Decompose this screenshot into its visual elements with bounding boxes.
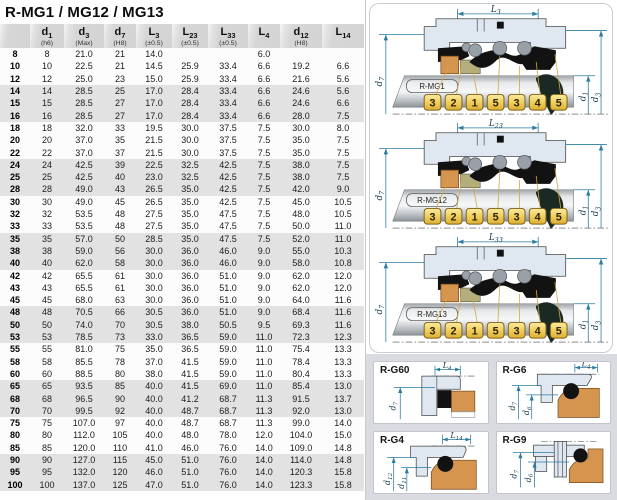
row-size-label: 75 [0, 417, 30, 429]
dimension-cell: 53 [30, 331, 64, 343]
svg-text:1: 1 [472, 326, 478, 338]
dimension-cell: 40.0 [136, 417, 172, 429]
dimension-cell: 10.3 [322, 245, 364, 257]
table-row: 9090127.011545.051.076.014.0114.014.8 [0, 454, 364, 466]
seat-diagram-rg60: R-G60 L4 d7 [373, 361, 489, 424]
dimension-cell: 27 [104, 97, 136, 109]
row-size-label: 38 [0, 245, 30, 257]
dimension-cell: 21.5 [136, 147, 172, 159]
dimension-cell: 7.5 [322, 159, 364, 171]
dimension-cell: 15 [30, 97, 64, 109]
dimension-cell: 58 [104, 257, 136, 269]
column-header: L14 [322, 24, 364, 48]
row-size-label: 68 [0, 393, 30, 405]
dimension-cell: 37.5 [208, 134, 248, 146]
table-row: 505074.07030.538.050.59.569.311.6 [0, 319, 364, 331]
dimension-cell: 14.5 [136, 60, 172, 72]
part-badge: 5 [487, 94, 504, 110]
dimension-cell: 7.5 [248, 147, 280, 159]
dimension-cell: 33.4 [208, 73, 248, 85]
dimension-cell: 45 [104, 196, 136, 208]
dimension-cell: 14.0 [248, 454, 280, 466]
dimension-cell: 28.5 [64, 110, 104, 122]
dimension-cell: 27 [104, 110, 136, 122]
dimension-cell: 40 [30, 257, 64, 269]
dimension-cell: 25.9 [172, 60, 208, 72]
dimension-cell: 41.0 [136, 442, 172, 454]
dimension-cell: 65 [30, 380, 64, 392]
dimension-cell: 33.4 [208, 60, 248, 72]
dimension-cell: 30.5 [136, 306, 172, 318]
dimension-cell: 41.5 [172, 380, 208, 392]
dimension-cell: 46.0 [172, 442, 208, 454]
set-screw [497, 22, 504, 29]
dimension-cell: 9.0 [248, 270, 280, 282]
dimension-cell: 51.0 [208, 294, 248, 306]
diagram-label: R-MG13 [417, 310, 447, 319]
dimension-cell: 127.0 [64, 454, 104, 466]
dimension-cell: 43 [104, 183, 136, 195]
table-row: 121225.02315.025.933.46.621.65.6 [0, 73, 364, 85]
dimension-cell: 42.5 [208, 159, 248, 171]
seal-cross-section-drawing: L33 R-MG13 [371, 233, 611, 347]
row-size-label: 53 [0, 331, 30, 343]
table-row: 8080112.010540.048.078.012.0104.015.0 [0, 429, 364, 441]
dimension-cell: 39 [104, 159, 136, 171]
dimension-cell: 6.0 [248, 48, 280, 60]
dimension-cell: 24.6 [280, 85, 322, 97]
table-row: 656593.58540.041.569.011.085.413.0 [0, 380, 364, 392]
dimension-cell: 21.5 [136, 134, 172, 146]
dim-label-d7: d7 [509, 469, 520, 478]
dimension-cell: 12.0 [322, 282, 364, 294]
dimension-cell: 42 [30, 270, 64, 282]
dimension-cell: 137.0 [64, 479, 104, 491]
part-badge: 3 [424, 322, 441, 338]
dimension-cell: 75.4 [280, 343, 322, 355]
column-header: d7(H8) [104, 24, 136, 48]
row-size-label: 40 [0, 257, 30, 269]
dim-label-d7: d7 [507, 401, 518, 410]
column-header: L23(±0.5) [172, 24, 208, 48]
dimension-cell: 15.8 [322, 466, 364, 478]
dimension-cell: 36.0 [172, 257, 208, 269]
dimension-cell: 28.5 [64, 97, 104, 109]
dimension-cell: 58.0 [280, 257, 322, 269]
dimension-cell: 23 [104, 73, 136, 85]
dimension-cell: 22.5 [64, 60, 104, 72]
table-row: 454568.06330.036.051.09.064.011.6 [0, 294, 364, 306]
dimension-cell: 59.0 [208, 368, 248, 380]
dimension-cell: 25 [104, 85, 136, 97]
dimension-cell: 45 [30, 294, 64, 306]
dimension-cell: 123.3 [280, 479, 322, 491]
row-size-label: 35 [0, 233, 30, 245]
column-header: L3(±0.5) [136, 24, 172, 48]
dimension-cell: 25.0 [64, 73, 104, 85]
part-badge: 5 [487, 322, 504, 338]
table-row: 8585120.011041.046.076.014.0109.014.8 [0, 442, 364, 454]
dimension-cell: 30.0 [136, 294, 172, 306]
dimension-cell: 93.5 [64, 380, 104, 392]
mg-seal-diagram: L33 R-MG13 [370, 233, 612, 347]
row-size-label: 90 [0, 454, 30, 466]
dimension-cell: 9.0 [248, 245, 280, 257]
dimension-cell: 59.0 [64, 245, 104, 257]
table-row: 100100137.012547.051.076.014.0123.315.8 [0, 479, 364, 491]
dimension-cell: 24.6 [280, 97, 322, 109]
svg-text:4: 4 [535, 98, 541, 110]
dim-label-d1: d1 [578, 320, 589, 330]
dimension-cell: 65.5 [64, 282, 104, 294]
svg-text:5: 5 [493, 98, 499, 110]
dimension-cell: 14.0 [248, 479, 280, 491]
part-badge: 5 [550, 208, 567, 224]
dimension-cell: 35.0 [280, 134, 322, 146]
row-size-label: 60 [0, 368, 30, 380]
dimension-cell: 69.3 [280, 319, 322, 331]
dimension-cell: 92.0 [280, 405, 322, 417]
dimension-cell: 5.6 [322, 85, 364, 97]
dimension-cell: 33.0 [136, 331, 172, 343]
row-size-label: 18 [0, 122, 30, 134]
dimension-cell: 13.3 [322, 356, 364, 368]
dimension-cell: 40.0 [136, 380, 172, 392]
dimension-cell: 28.4 [172, 85, 208, 97]
dimension-cell: 28.4 [172, 97, 208, 109]
row-size-label: 42 [0, 270, 30, 282]
dimension-cell: 78 [104, 356, 136, 368]
mg-diagrams-card: L3 R-MG1 [369, 3, 613, 353]
dimension-cell: 35 [104, 134, 136, 146]
row-size-label: 65 [0, 380, 30, 392]
dimension-cell: 68.7 [208, 417, 248, 429]
dim-label-d7: d7 [375, 76, 386, 87]
row-size-label: 20 [0, 134, 30, 146]
dimension-cell: 32.5 [172, 159, 208, 171]
dimension-cell: 48 [30, 306, 64, 318]
dimension-cell: 53.5 [64, 220, 104, 232]
dimension-cell: 36.5 [172, 331, 208, 343]
row-size-label: 8 [0, 48, 30, 60]
dimension-cell: 7.5 [322, 147, 364, 159]
table-row: 252542.54023.032.542.57.538.07.5 [0, 171, 364, 183]
dimension-cell: 48.0 [172, 429, 208, 441]
dimension-cell: 14.0 [136, 48, 172, 60]
dimension-cell: 33.4 [208, 110, 248, 122]
dimension-cell: 12.0 [248, 429, 280, 441]
dimension-cell: 38.0 [280, 159, 322, 171]
svg-text:5: 5 [493, 326, 499, 338]
dimension-cell: 6.6 [248, 110, 280, 122]
dimension-cell: 41.5 [172, 368, 208, 380]
elastomer-bellows [469, 160, 555, 184]
dimension-cell: 22 [30, 147, 64, 159]
dimension-cell: 125 [104, 479, 136, 491]
dimension-cell: 36.0 [172, 270, 208, 282]
dimension-cell: 59.0 [208, 356, 248, 368]
dimension-cell: 62.0 [280, 270, 322, 282]
dim-label-d3: d3 [591, 207, 602, 217]
dimension-cell: 14.0 [248, 466, 280, 478]
dimension-cell: 46.0 [136, 466, 172, 478]
dimension-cell: 11.3 [248, 405, 280, 417]
dimension-cell: 120.0 [64, 442, 104, 454]
dimension-cell: 73 [104, 331, 136, 343]
column-header: d3(Max) [64, 24, 104, 48]
table-row: 303049.04526.535.042.57.545.010.5 [0, 196, 364, 208]
dimension-cell: 7.5 [322, 110, 364, 122]
table-row: 333353.54827.535.047.57.550.011.0 [0, 220, 364, 232]
diagram-label: R-G9 [503, 435, 527, 446]
dim-label-d3: d3 [591, 321, 602, 331]
dimension-cell: 58 [30, 356, 64, 368]
svg-text:5: 5 [556, 212, 562, 224]
table-row: 202037.03521.530.037.57.535.07.5 [0, 134, 364, 146]
row-size-label: 70 [0, 405, 30, 417]
dimension-cell: 72.3 [280, 331, 322, 343]
dimension-cell: 36.0 [172, 294, 208, 306]
dimension-cell: 35 [30, 233, 64, 245]
dimension-cell: 35.0 [172, 233, 208, 245]
dimension-cell: 132.0 [64, 466, 104, 478]
dimension-cell: 7.5 [248, 233, 280, 245]
dimension-cell: 47.5 [208, 208, 248, 220]
dimension-cell: 95 [30, 466, 64, 478]
dimension-cell: 30.0 [172, 147, 208, 159]
dimension-cell: 59.0 [208, 331, 248, 343]
dimension-cell: 85.4 [280, 380, 322, 392]
part-badge: 4 [529, 322, 546, 338]
dimension-cell: 25.9 [172, 73, 208, 85]
table-row: 7575107.09740.048.768.711.399.014.0 [0, 417, 364, 429]
dimension-cell: 120 [104, 466, 136, 478]
table-row: 707099.59240.048.768.711.392.013.0 [0, 405, 364, 417]
row-size-label: 28 [0, 183, 30, 195]
diagram-label: R-G6 [503, 365, 527, 376]
dim-label-length: L3 [490, 5, 501, 16]
dimension-cell: 23.0 [136, 171, 172, 183]
dim-label-length: L33 [488, 233, 503, 244]
dimension-cell: 80.4 [280, 368, 322, 380]
dimension-cell: 52.0 [280, 233, 322, 245]
dimension-cell: 48 [104, 220, 136, 232]
dimension-cell: 11.6 [322, 319, 364, 331]
dimension-cell: 76.0 [208, 479, 248, 491]
dimension-cell: 30.0 [172, 122, 208, 134]
dimension-cell: 9.0 [322, 183, 364, 195]
dimension-cell: 12.0 [322, 270, 364, 282]
row-size-label: 24 [0, 159, 30, 171]
row-size-label: 33 [0, 220, 30, 232]
part-badge: 3 [508, 94, 525, 110]
dim-label-l4: L4 [580, 362, 590, 371]
dimension-cell: 48.7 [172, 405, 208, 417]
dimension-cell: 30.0 [172, 134, 208, 146]
dimension-cell: 75 [30, 417, 64, 429]
dim-label-d7: d7 [375, 190, 386, 201]
dimension-cell: 110 [104, 442, 136, 454]
table-row: 353557.05028.535.047.57.552.011.0 [0, 233, 364, 245]
table-row: 404062.05830.036.046.09.058.010.8 [0, 257, 364, 269]
part-badge: 2 [445, 208, 462, 224]
dimension-cell: 36.5 [172, 343, 208, 355]
dimension-cell: 42.5 [64, 171, 104, 183]
dimension-cell: 75 [104, 343, 136, 355]
dimension-cell: 26.5 [136, 196, 172, 208]
dimension-cell: 63 [104, 294, 136, 306]
table-row: 151528.52717.028.433.46.624.66.6 [0, 97, 364, 109]
dimension-cell: 43 [30, 282, 64, 294]
dimension-cell: 68.0 [64, 294, 104, 306]
table-row: 434365.56130.036.051.09.062.012.0 [0, 282, 364, 294]
svg-text:1: 1 [472, 98, 478, 110]
part-badge: 2 [445, 94, 462, 110]
dimension-cell: 78.4 [280, 356, 322, 368]
dimension-cell: 92 [104, 405, 136, 417]
dimension-cell [172, 48, 208, 60]
table-header-row: d1(h6)d3(Max)d7(H8)L3(±0.5)L23(±0.5)L33(… [0, 24, 364, 48]
seal-face-primary [441, 284, 459, 302]
dimension-cell [208, 48, 248, 60]
svg-text:4: 4 [535, 326, 541, 338]
dimension-cell: 109.0 [280, 442, 322, 454]
dimension-cell: 76.0 [208, 466, 248, 478]
row-size-label: 80 [0, 429, 30, 441]
dimension-cell: 10.8 [322, 257, 364, 269]
dimension-cell: 9.0 [248, 294, 280, 306]
dimension-cell: 47.5 [208, 233, 248, 245]
part-badge: 1 [466, 322, 483, 338]
dimension-cell: 81.0 [64, 343, 104, 355]
dimension-cell: 13.0 [322, 405, 364, 417]
dimension-cell: 47.0 [136, 479, 172, 491]
dimension-cell: 24 [30, 159, 64, 171]
dimension-cell: 97 [104, 417, 136, 429]
dimension-cell: 61 [104, 270, 136, 282]
dimension-cell: 38.0 [280, 171, 322, 183]
dimension-cell: 27.5 [136, 220, 172, 232]
column-header: d1(h6) [30, 24, 64, 48]
dim-label-l4: L4 [442, 362, 452, 372]
dimension-cell: 32.0 [64, 122, 104, 134]
dimension-cell: 37.0 [64, 147, 104, 159]
svg-text:1: 1 [472, 212, 478, 224]
table-row: 686896.59040.041.268.711.391.513.7 [0, 393, 364, 405]
dimension-cell: 7.5 [248, 134, 280, 146]
dimension-cell: 21.6 [280, 73, 322, 85]
dimension-cell: 85.5 [64, 356, 104, 368]
dimension-cell: 27.5 [136, 208, 172, 220]
dimension-cell: 68.7 [208, 393, 248, 405]
dimension-cell: 14.8 [322, 442, 364, 454]
dim-label-d12: d12 [383, 472, 394, 485]
dimension-cell: 90 [104, 393, 136, 405]
seal-cross-section-drawing: L23 R-MG12 [371, 119, 611, 233]
dimension-cell: 51.0 [172, 479, 208, 491]
row-size-label: 58 [0, 356, 30, 368]
dimension-cell: 62.0 [64, 257, 104, 269]
dimension-cell: 51.0 [208, 270, 248, 282]
spring [469, 158, 482, 171]
dimension-cell: 80 [104, 368, 136, 380]
column-header [0, 24, 30, 48]
dimension-cell: 114.0 [280, 454, 322, 466]
row-size-label: 45 [0, 294, 30, 306]
dimension-cell: 85 [30, 442, 64, 454]
dimension-cell: 28 [30, 183, 64, 195]
dimension-cell: 15.0 [136, 73, 172, 85]
dimension-cell: 7.5 [322, 171, 364, 183]
dimension-cell: 48 [104, 208, 136, 220]
dim-label-l14: L14 [449, 432, 463, 442]
dimension-cell: 22.5 [136, 159, 172, 171]
dimension-cell: 36.0 [172, 306, 208, 318]
dimension-cell: 30.0 [136, 245, 172, 257]
dimension-cell: 46.0 [208, 257, 248, 269]
column-header: L4 [248, 24, 280, 48]
dimension-cell: 51.0 [208, 282, 248, 294]
column-header: L33(±0.5) [208, 24, 248, 48]
dimension-cell: 50 [104, 233, 136, 245]
dimension-cell: 7.5 [248, 171, 280, 183]
svg-text:4: 4 [535, 212, 541, 224]
dimension-cell: 40 [104, 171, 136, 183]
table-row: 424265.56130.036.051.09.062.012.0 [0, 270, 364, 282]
row-size-label: 12 [0, 73, 30, 85]
dimension-cell: 112.0 [64, 429, 104, 441]
dimension-cell: 61 [104, 282, 136, 294]
column-header: d12(H8) [280, 24, 322, 48]
dimension-cell: 7.5 [248, 183, 280, 195]
dimension-cell: 13.7 [322, 393, 364, 405]
dimension-cell: 38.0 [136, 368, 172, 380]
dimension-cell: 35.0 [172, 196, 208, 208]
table-row: 555581.07535.036.559.011.075.413.3 [0, 343, 364, 355]
row-size-label: 14 [0, 85, 30, 97]
diagram-label: R-G60 [380, 365, 409, 376]
dimension-cell: 36.0 [172, 245, 208, 257]
dimension-cell: 26.5 [136, 183, 172, 195]
dimension-cell: 33 [104, 122, 136, 134]
svg-text:3: 3 [514, 326, 520, 338]
row-size-label: 22 [0, 147, 30, 159]
dim-label-d6: d6 [523, 473, 534, 482]
dimension-cell: 48.0 [280, 208, 322, 220]
svg-text:3: 3 [514, 212, 520, 224]
table-row: 141428.52517.028.433.46.624.65.6 [0, 85, 364, 97]
dimension-cell: 11.0 [248, 368, 280, 380]
dimension-cell: 78.5 [64, 331, 104, 343]
dimension-cell: 11.6 [322, 294, 364, 306]
dimension-cell: 99.0 [280, 417, 322, 429]
dimension-cell: 40.0 [136, 393, 172, 405]
dimension-cell: 10.5 [322, 208, 364, 220]
dimension-cell: 6.6 [248, 85, 280, 97]
dimension-cell: 51.0 [172, 454, 208, 466]
table-row: 606088.58038.041.559.011.080.413.3 [0, 368, 364, 380]
dimension-cell: 12.3 [322, 331, 364, 343]
dimension-cell: 21 [104, 60, 136, 72]
part-badge: 4 [529, 208, 546, 224]
dimension-cell: 11.0 [248, 356, 280, 368]
dimension-cell: 45.0 [280, 196, 322, 208]
dimension-cell: 38 [30, 245, 64, 257]
dimension-cell: 28.5 [64, 85, 104, 97]
set-screw [497, 250, 504, 257]
svg-text:3: 3 [514, 98, 520, 110]
row-size-label: 95 [0, 466, 30, 478]
